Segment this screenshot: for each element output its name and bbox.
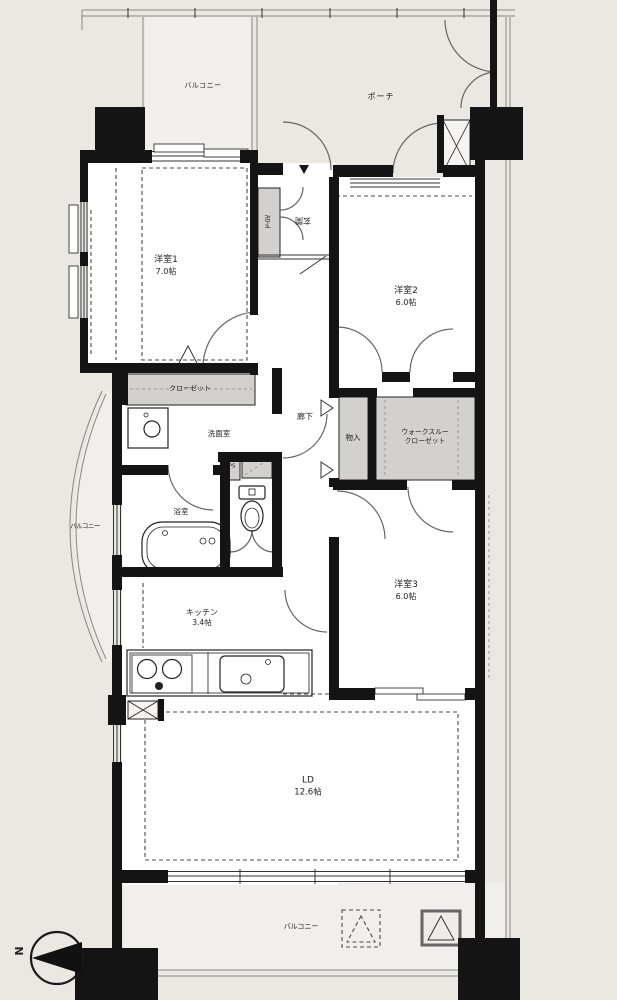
closet-label: クローゼット <box>169 384 211 393</box>
storage-label: 物入 <box>346 433 361 443</box>
kitchen-name: キッチン <box>186 608 218 618</box>
room3-size: 6.0帖 <box>394 592 418 602</box>
room2-label: 洋室2 6.0帖 <box>394 286 418 308</box>
walkthrough-closet-line2: クローゼット <box>401 437 448 446</box>
living-dining-name: LD <box>294 776 321 788</box>
balcony-top-label: バルコニー <box>184 81 221 90</box>
compass-north-label: N <box>13 946 27 955</box>
kitchen-size: 3.4帖 <box>186 618 218 628</box>
meter-box-porch <box>443 120 470 172</box>
walkthrough-closet-line1: ウォークスルー <box>401 428 448 437</box>
column <box>470 107 523 160</box>
entrance-door-arc <box>283 122 331 170</box>
room1-size: 7.0帖 <box>154 267 178 277</box>
washroom-label: 洗面室 <box>208 429 231 439</box>
room1-name: 洋室1 <box>154 255 178 267</box>
bathroom-label: 浴室 <box>174 507 189 517</box>
window-sill <box>69 205 78 253</box>
window-sill <box>69 266 78 318</box>
floor-plan-drawing <box>0 0 617 1000</box>
porch-gate-arc <box>445 20 497 72</box>
walkthrough-closet-label: ウォークスルー クローゼット <box>401 428 448 446</box>
room2-top-window <box>350 178 440 187</box>
porch-label: ポーチ <box>368 92 395 102</box>
column <box>95 107 145 153</box>
hallway-label: 廊下 <box>297 412 313 422</box>
compass-needle <box>32 942 82 974</box>
room3-name: 洋室3 <box>394 580 418 592</box>
floor-plan: バルコニー ポーチ 洋室1 7.0帖 玄関 下足 洋室2 6.0帖 廊下 物入 … <box>0 0 617 1000</box>
shoe-cabinet-label: 下足 <box>265 216 273 229</box>
column <box>458 938 520 1000</box>
room1-label: 洋室1 7.0帖 <box>154 255 178 277</box>
meter-box-kitchen <box>128 701 158 719</box>
ld-balcony-window <box>168 869 465 884</box>
kitchen-label: キッチン 3.4帖 <box>186 608 218 628</box>
room2-name: 洋室2 <box>394 286 418 298</box>
living-dining-size: 12.6帖 <box>294 787 321 798</box>
porch-door-arc <box>393 123 443 173</box>
living-dining-label: LD 12.6帖 <box>294 776 321 799</box>
entrance-label: 玄関 <box>295 215 311 225</box>
partition-panel <box>422 911 460 945</box>
compass <box>31 932 83 984</box>
room2-size: 6.0帖 <box>394 298 418 308</box>
balcony-bottom-label: バルコニー <box>284 922 319 931</box>
balcony-left-label: バルコニー <box>70 522 100 530</box>
column <box>75 948 158 1000</box>
room3-label: 洋室3 6.0帖 <box>394 580 418 602</box>
pipe-space-label: PS <box>229 463 236 470</box>
